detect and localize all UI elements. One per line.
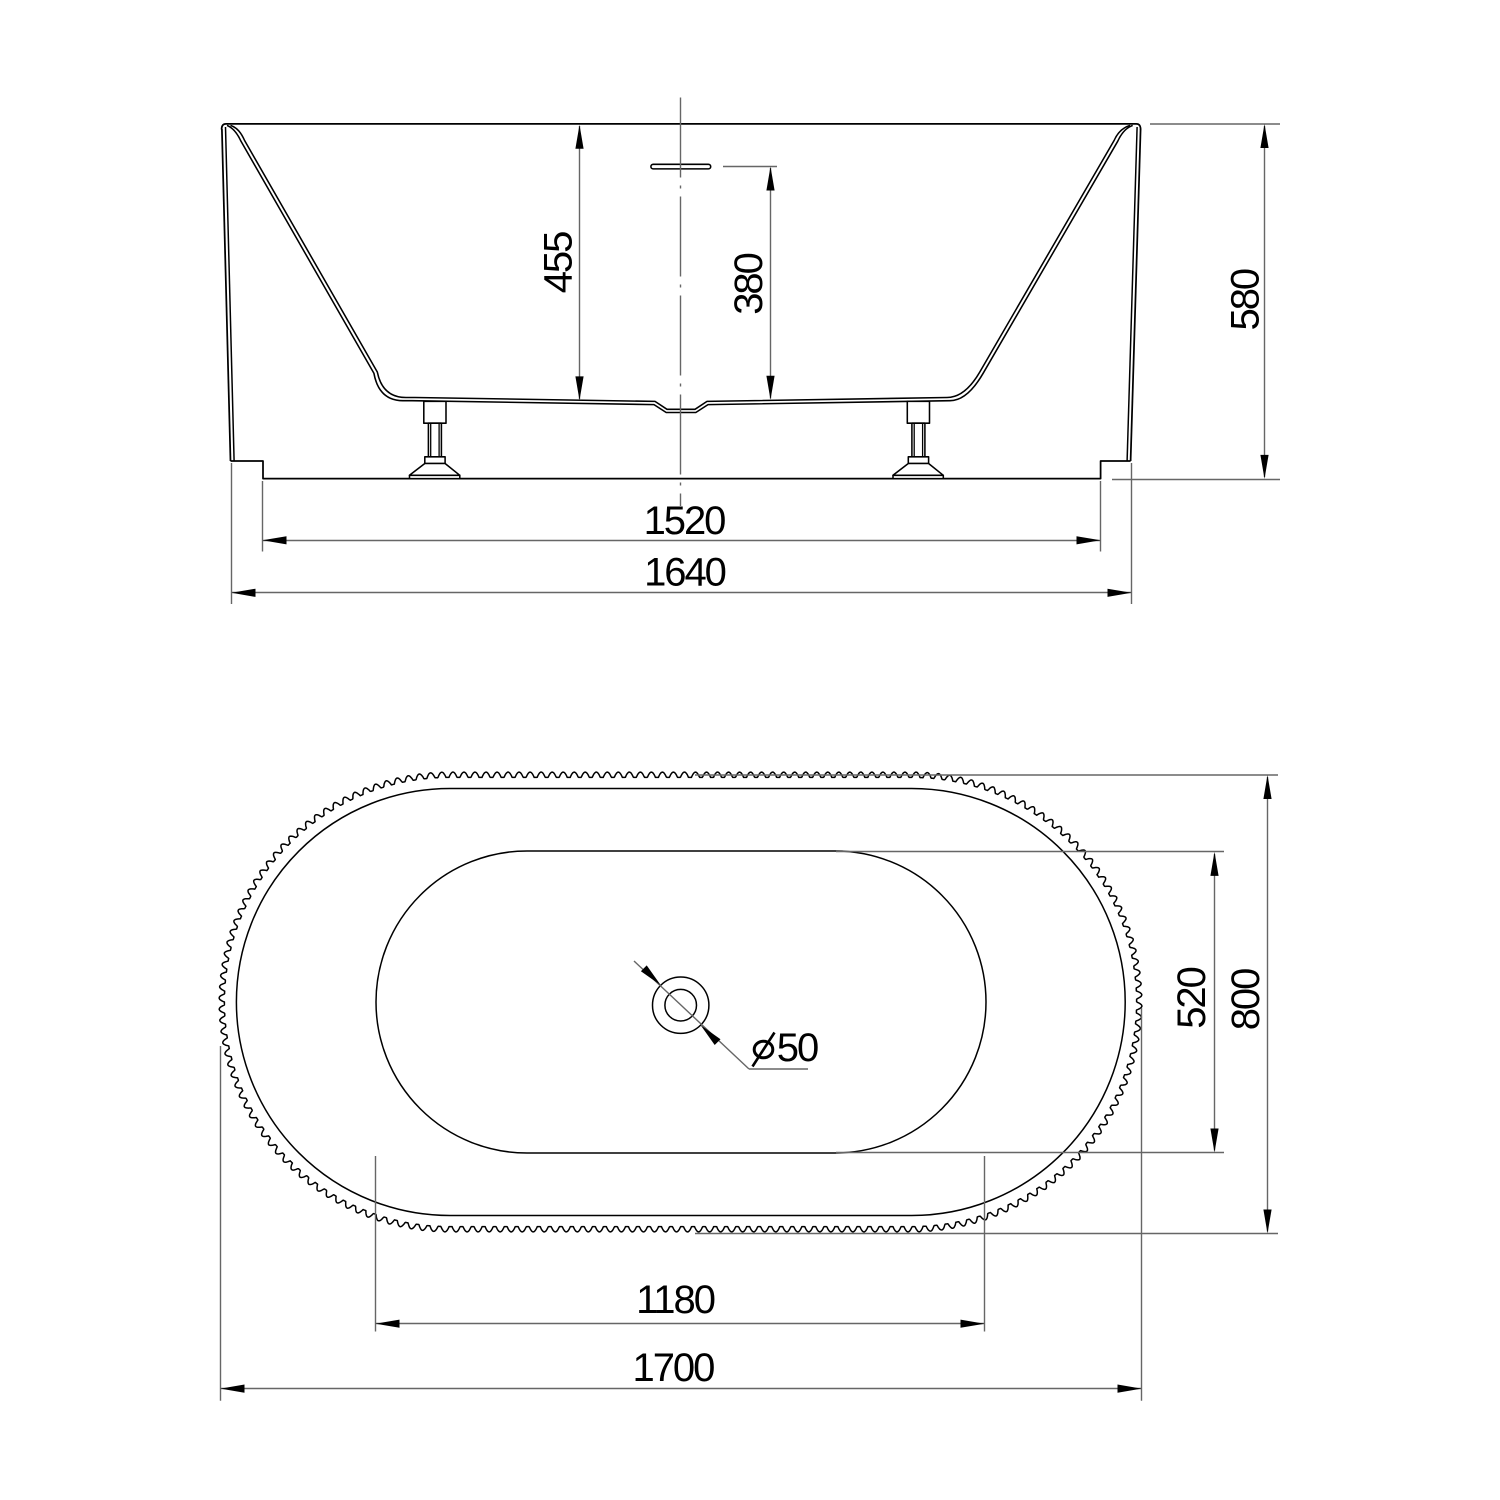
svg-text:520: 520 [1170,967,1214,1028]
svg-text:1520: 1520 [644,499,726,543]
svg-text:1180: 1180 [636,1278,715,1322]
svg-text:800: 800 [1224,969,1268,1030]
svg-text:1640: 1640 [644,551,726,595]
svg-text:1700: 1700 [633,1346,715,1390]
svg-text:50: 50 [777,1026,818,1070]
svg-text:455: 455 [536,232,580,293]
svg-text:580: 580 [1224,269,1268,330]
svg-text:380: 380 [727,253,771,314]
